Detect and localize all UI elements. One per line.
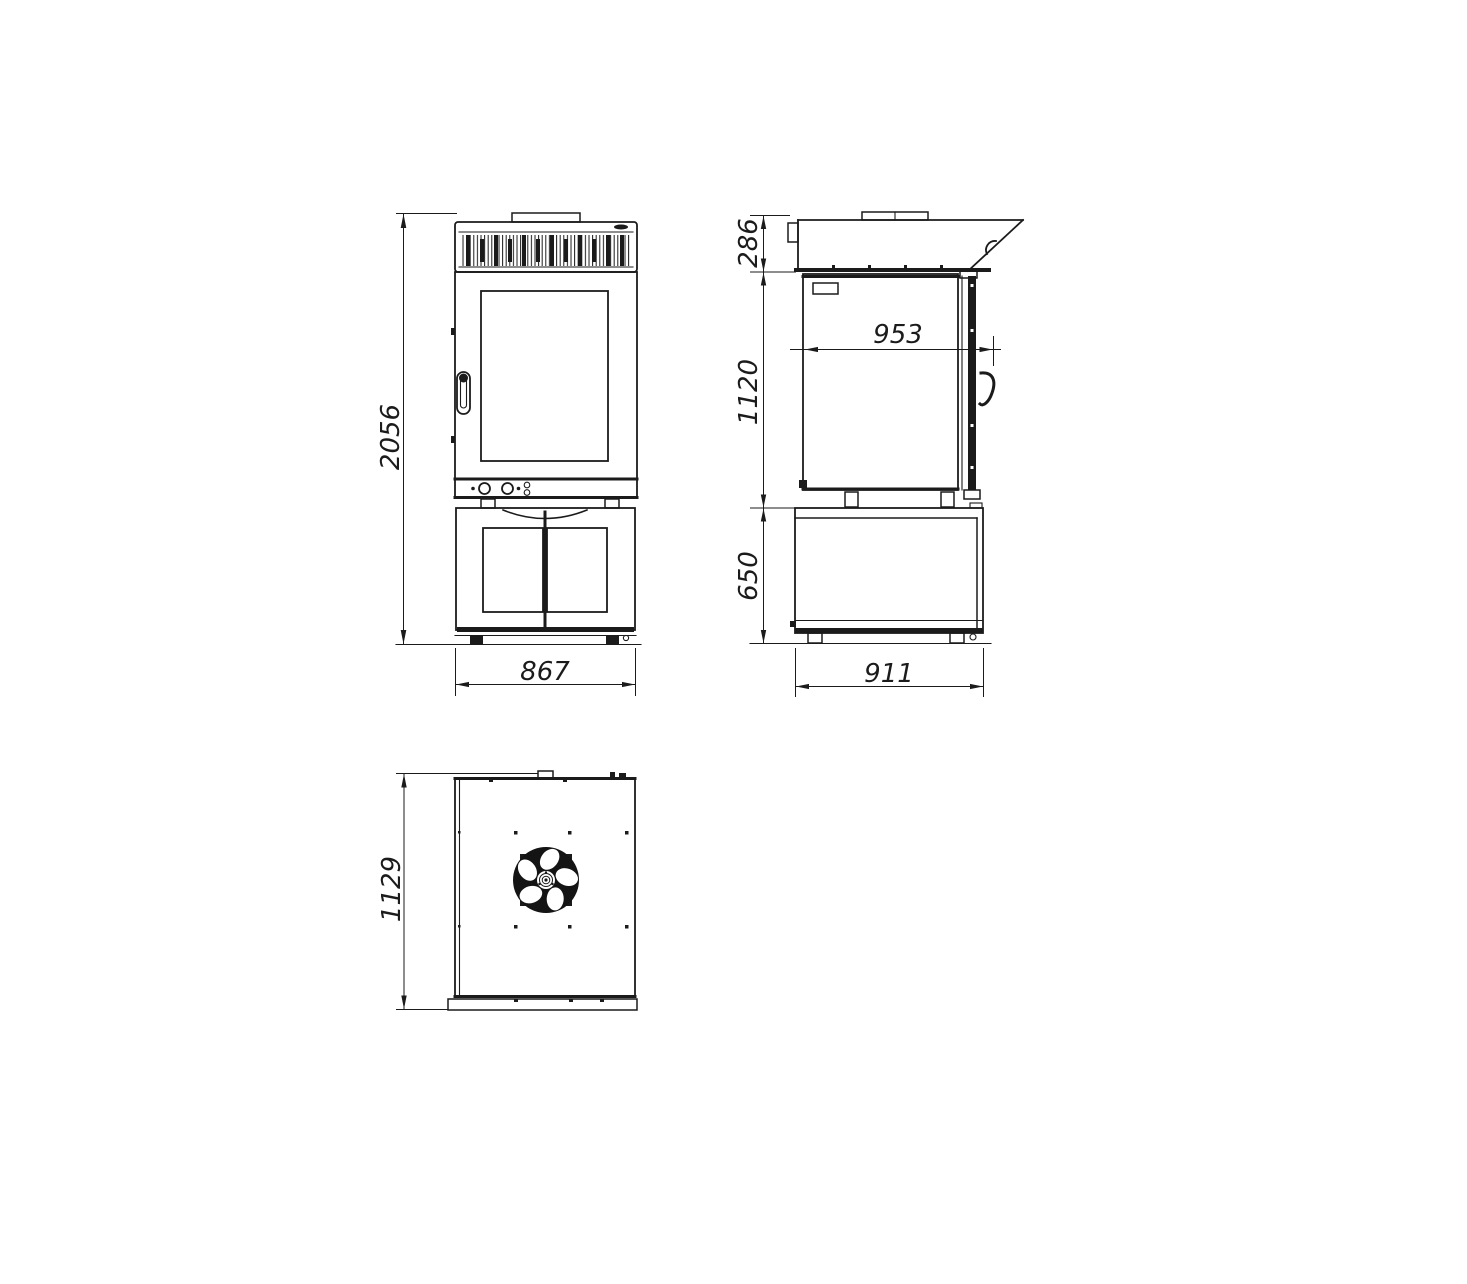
stand-foot (470, 636, 483, 644)
indicator-light (471, 487, 475, 491)
oven-foot-side (941, 492, 954, 507)
dim-label-front-width: 867 (520, 657, 570, 687)
oven-foot-side (845, 492, 858, 507)
dim-label-hood-height: 286 (734, 218, 764, 268)
hood-bracket (788, 223, 798, 242)
indicator-light (524, 490, 530, 496)
fan-icon (509, 843, 583, 917)
dim-front-width: 867 (456, 648, 636, 696)
oven-foot (481, 499, 495, 508)
dim-label-top-depth: 1129 (377, 856, 407, 922)
indicator-light (524, 482, 530, 488)
vent-grille (455, 222, 637, 272)
foot-adjuster (623, 635, 628, 640)
door-handle-side (980, 373, 994, 405)
dim-label-depth-with-handle: 953 (873, 320, 923, 350)
hood (788, 212, 1023, 278)
stand-side (790, 503, 983, 643)
oven-door (451, 272, 637, 498)
door-hinge (451, 436, 455, 443)
dim-side-depth-base: 911 (796, 648, 984, 697)
stand-door-left (483, 528, 543, 612)
stand-foot-side (808, 633, 822, 643)
chimney-duct (512, 213, 580, 222)
dim-top-depth: 1129 (377, 774, 538, 1010)
stand-foot (606, 636, 619, 644)
dim-front-height: 2056 (376, 214, 457, 645)
door-handle (457, 372, 470, 414)
side-view (750, 212, 1023, 644)
dim-label-stand-height: 650 (734, 551, 764, 601)
control-knob (502, 483, 513, 494)
indicator-light (517, 487, 521, 491)
stand-foot-side (950, 633, 964, 643)
hinge-bracket (799, 480, 807, 488)
body-side (799, 274, 994, 507)
dim-label-body-height: 1120 (734, 359, 764, 425)
drawing-sheet: 2056 867 (0, 0, 1467, 1284)
front-edge-strip (448, 999, 637, 1010)
stand (455, 508, 636, 644)
rating-plate (813, 283, 838, 294)
door-hinge (451, 328, 455, 335)
door-window (481, 291, 608, 461)
front-view (396, 213, 641, 645)
stand-door-right (547, 528, 607, 612)
technical-drawing-canvas: 2056 867 (0, 0, 1467, 1284)
dim-label-front-height: 2056 (376, 404, 406, 470)
top-view (448, 771, 637, 1010)
chimney-top (538, 771, 553, 778)
dim-side-heights: 286 1120 650 (734, 216, 796, 644)
foot-adjuster (970, 634, 976, 640)
brand-badge (614, 225, 628, 230)
door-edge-side (968, 276, 976, 490)
control-knob (479, 483, 490, 494)
dim-label-stand-depth: 911 (864, 659, 914, 689)
oven-foot (605, 499, 619, 508)
control-panel (455, 479, 637, 498)
